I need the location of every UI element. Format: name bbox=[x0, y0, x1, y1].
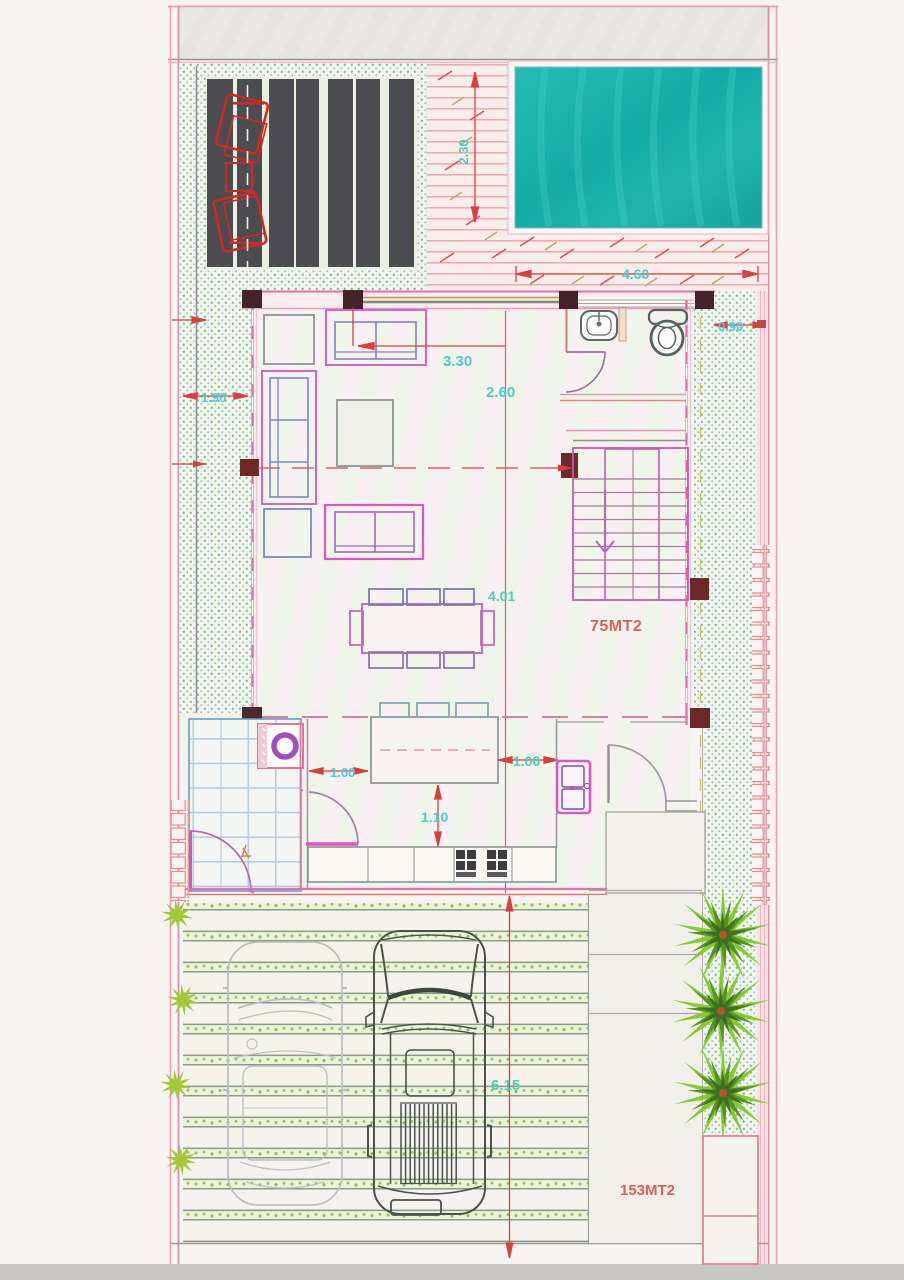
svg-text:2.60: 2.60 bbox=[486, 384, 515, 401]
svg-text:1.00: 1.00 bbox=[330, 765, 355, 780]
svg-text:153MT2: 153MT2 bbox=[620, 1182, 675, 1199]
svg-text:1.10: 1.10 bbox=[421, 809, 448, 825]
svg-text:75MT2: 75MT2 bbox=[590, 618, 642, 635]
svg-text:3.30: 3.30 bbox=[443, 353, 472, 370]
svg-text:6.15: 6.15 bbox=[491, 1077, 520, 1094]
svg-text:0.90: 0.90 bbox=[718, 319, 743, 334]
svg-text:4.60: 4.60 bbox=[622, 266, 649, 282]
svg-text:4.01: 4.01 bbox=[488, 588, 515, 604]
svg-text:1.90: 1.90 bbox=[201, 390, 226, 405]
svg-text:1.00: 1.00 bbox=[513, 753, 540, 769]
svg-text:2.30: 2.30 bbox=[456, 139, 471, 164]
